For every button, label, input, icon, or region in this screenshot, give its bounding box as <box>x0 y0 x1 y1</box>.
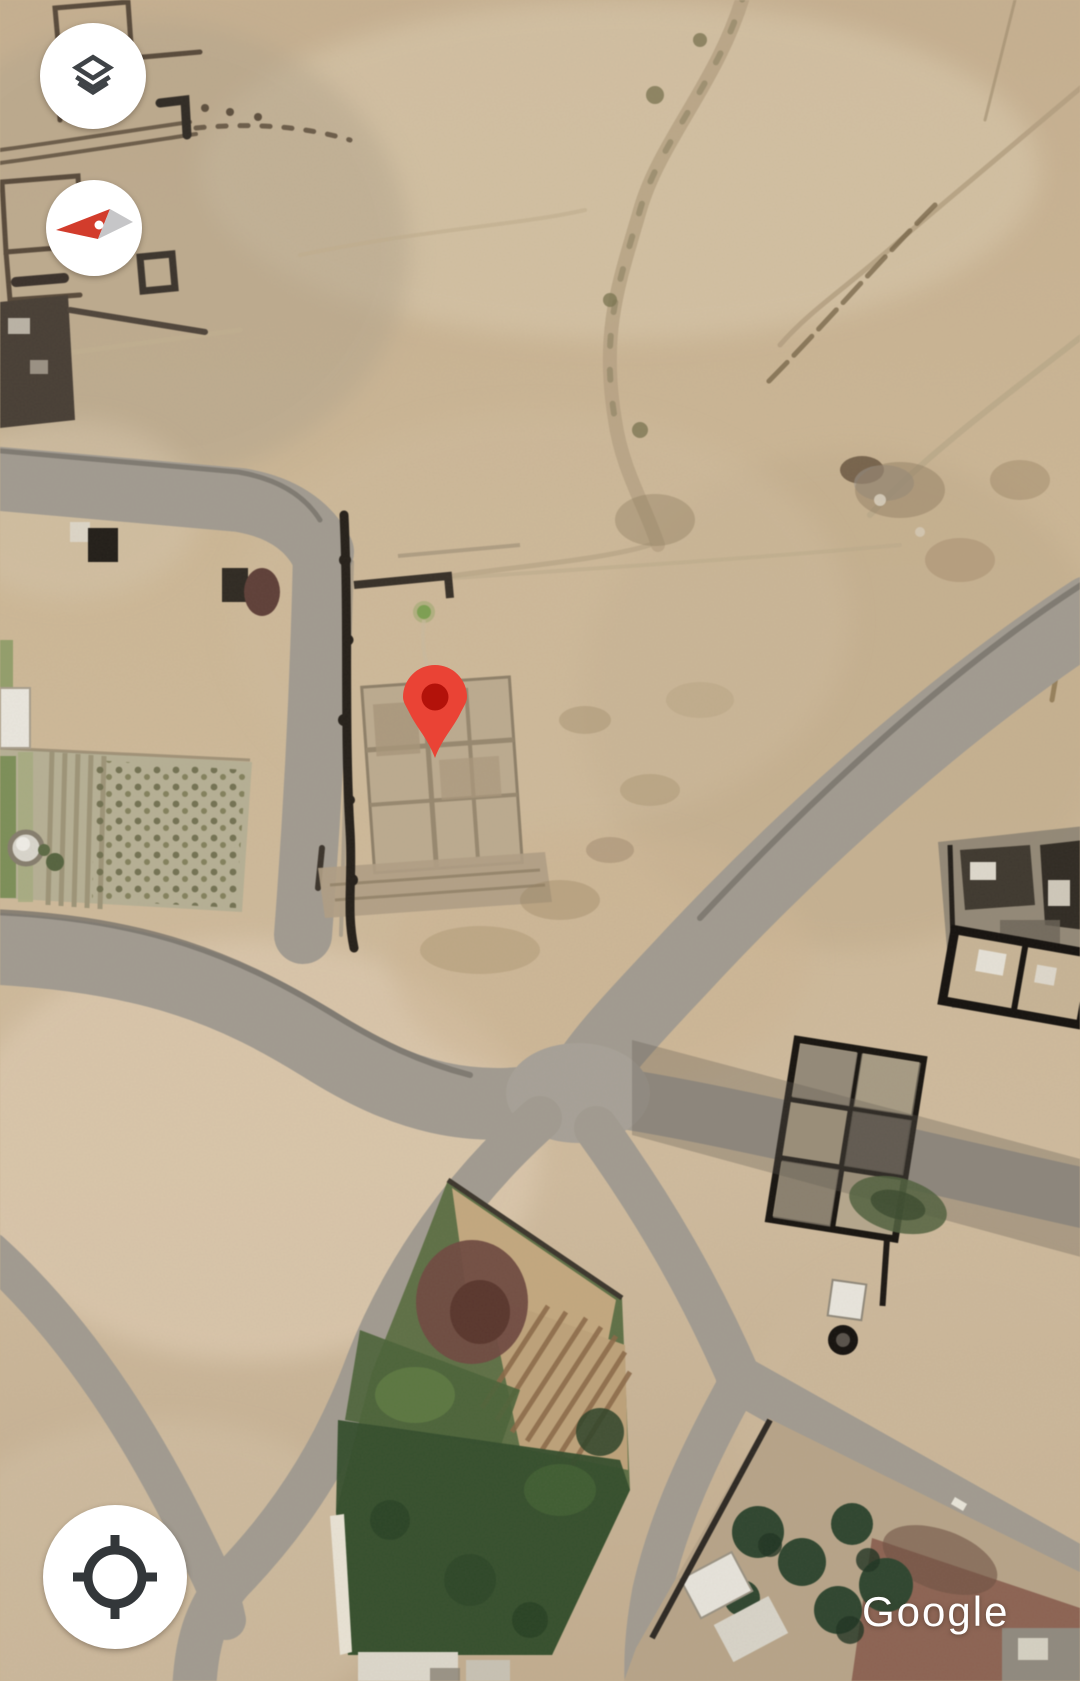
grain-overlay <box>0 0 1080 1681</box>
google-watermark: Google <box>862 1588 1009 1636</box>
google-maps-satellite-screen: Google <box>0 0 1080 1681</box>
my-location-button[interactable] <box>43 1505 187 1649</box>
my-location-icon <box>63 1525 167 1629</box>
map-pin[interactable] <box>397 655 473 761</box>
compass-icon <box>52 206 136 250</box>
map-pin-icon <box>403 665 467 758</box>
layers-button[interactable] <box>40 23 146 129</box>
map-canvas[interactable] <box>0 0 1080 1681</box>
map-pin-inner-dot <box>422 684 449 711</box>
layers-icon <box>68 51 118 101</box>
compass-button[interactable] <box>46 180 142 276</box>
